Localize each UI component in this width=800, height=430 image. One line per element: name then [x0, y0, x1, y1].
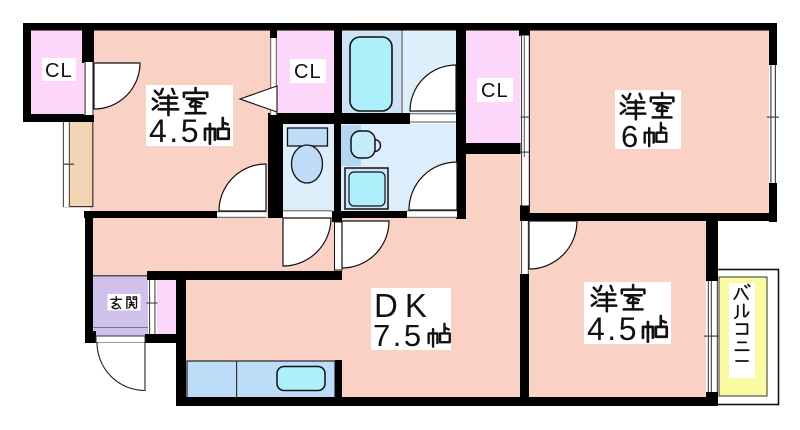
svg-text:4.5: 4.5 — [587, 311, 639, 347]
svg-text:CL: CL — [45, 60, 73, 82]
svg-text:4.5: 4.5 — [149, 113, 201, 149]
svg-text:CL: CL — [294, 61, 322, 83]
svg-text:7.5: 7.5 — [373, 318, 424, 353]
svg-text:6: 6 — [621, 119, 638, 154]
svg-text:CL: CL — [481, 80, 509, 102]
